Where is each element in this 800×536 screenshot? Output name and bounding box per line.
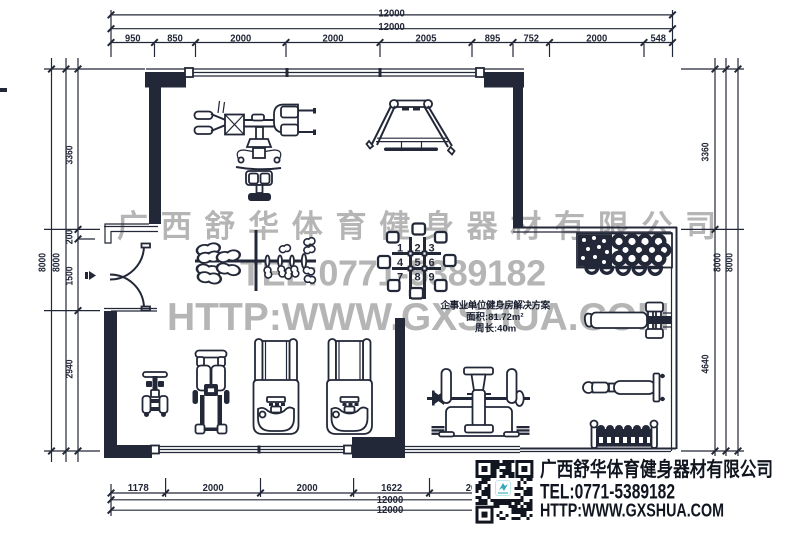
svg-text:2000: 2000 <box>323 32 344 44</box>
svg-text:950: 950 <box>125 32 141 44</box>
svg-text:HTTP:WWW.GXSHUA.COM: HTTP:WWW.GXSHUA.COM <box>540 500 724 521</box>
svg-text:8000: 8000 <box>724 253 736 272</box>
svg-text:548: 548 <box>650 32 666 44</box>
svg-text:1178: 1178 <box>128 482 149 494</box>
svg-text:8000: 8000 <box>712 253 724 272</box>
svg-text:12000: 12000 <box>378 7 405 19</box>
svg-text:周长:40m: 周长:40m <box>475 323 516 335</box>
svg-text:6: 6 <box>428 257 434 269</box>
svg-text:9: 9 <box>428 272 434 284</box>
svg-text:3360: 3360 <box>64 145 76 164</box>
svg-text:752: 752 <box>523 32 539 44</box>
svg-text:8000: 8000 <box>51 253 63 272</box>
svg-text:4: 4 <box>397 257 404 269</box>
svg-text:8000: 8000 <box>37 253 49 272</box>
svg-text:8: 8 <box>414 272 420 284</box>
svg-text:企事业单位健身房解决方案: 企事业单位健身房解决方案 <box>440 300 551 312</box>
svg-text:3: 3 <box>428 243 434 255</box>
svg-text:2005: 2005 <box>416 32 437 44</box>
svg-text:12000: 12000 <box>378 21 405 33</box>
svg-text:850: 850 <box>167 32 183 44</box>
svg-text:4640: 4640 <box>700 354 712 373</box>
svg-text:1500: 1500 <box>64 266 76 285</box>
svg-text:3360: 3360 <box>700 142 712 161</box>
svg-text:12000: 12000 <box>377 504 404 516</box>
svg-text:2000: 2000 <box>203 482 224 494</box>
svg-text:广西舒华体育健身器材有限公司: 广西舒华体育健身器材有限公司 <box>540 457 773 481</box>
svg-text:895: 895 <box>485 32 501 44</box>
svg-text:200: 200 <box>64 230 76 245</box>
svg-text:2: 2 <box>414 243 420 255</box>
svg-text:2000: 2000 <box>297 482 318 494</box>
svg-text:1: 1 <box>397 243 403 255</box>
svg-text:面积:81.72m²: 面积:81.72m² <box>466 311 524 323</box>
svg-text:2940: 2940 <box>64 359 76 378</box>
svg-text:2000: 2000 <box>230 32 251 44</box>
svg-text:2000: 2000 <box>586 32 607 44</box>
svg-text:1622: 1622 <box>381 482 402 494</box>
svg-text:5: 5 <box>414 257 420 269</box>
